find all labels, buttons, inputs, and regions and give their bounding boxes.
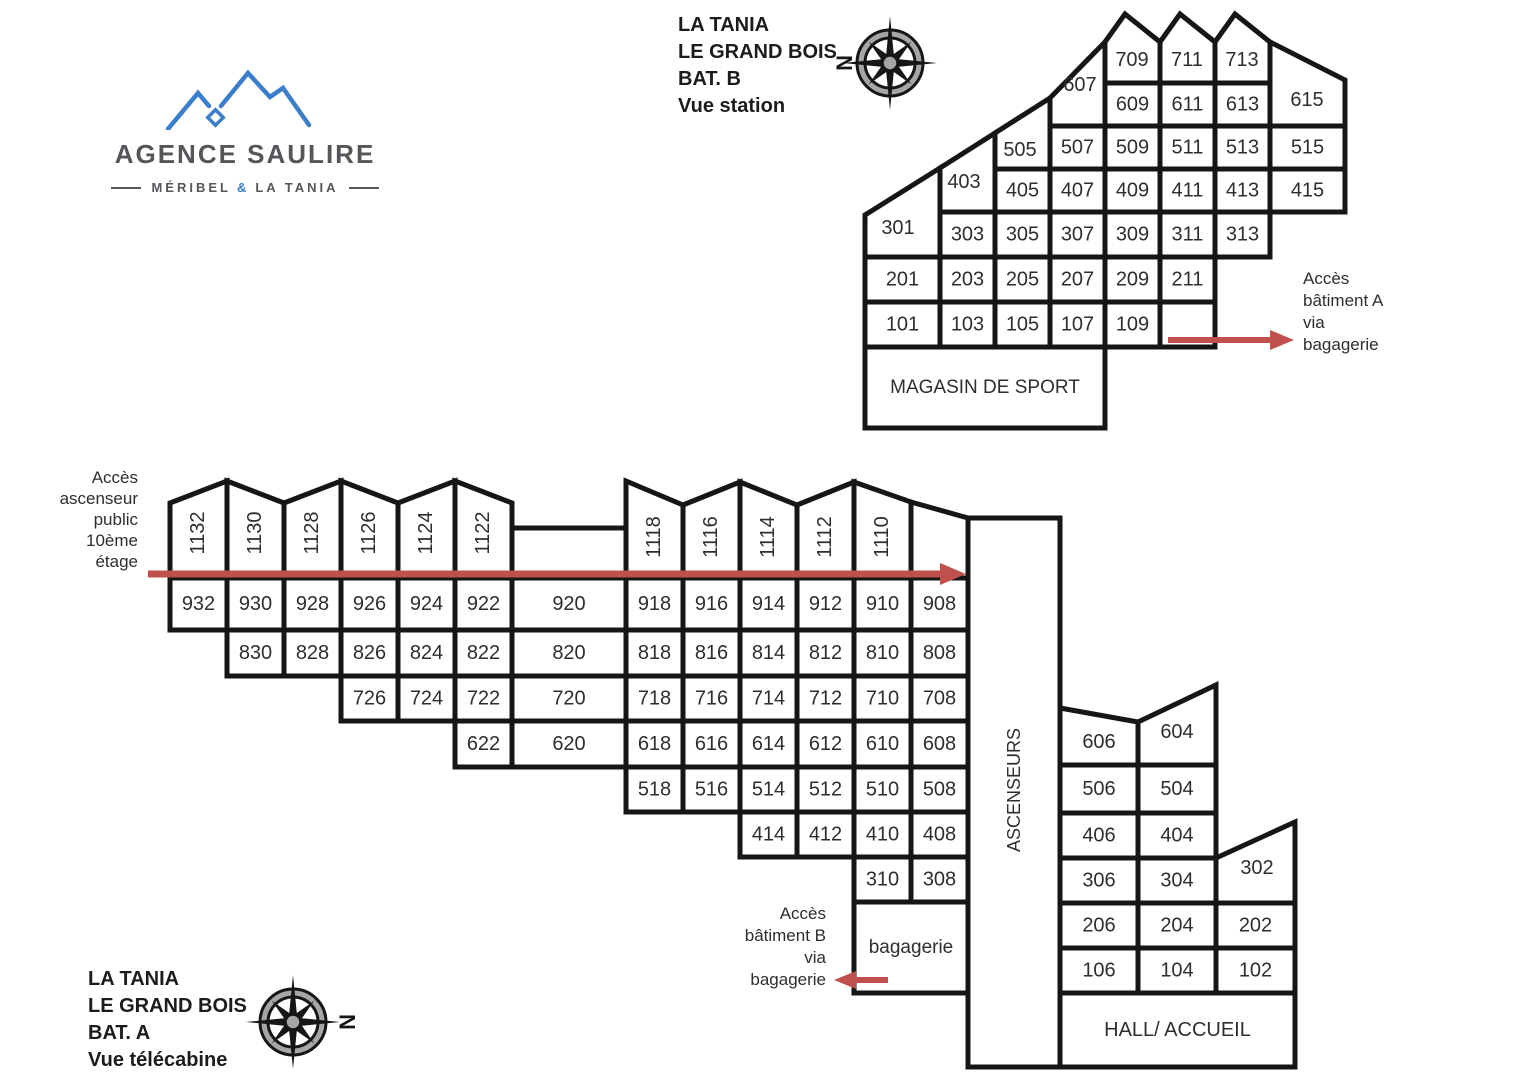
cell-301: [865, 168, 940, 257]
room-label: 713: [1225, 49, 1258, 71]
room-label: 209: [1116, 269, 1149, 291]
room-label: 302: [1240, 857, 1273, 879]
room-label: 818: [638, 642, 671, 664]
room-label: 311: [1172, 224, 1204, 246]
room-label: 205: [1006, 269, 1039, 291]
room-label: 309: [1116, 224, 1149, 246]
room-label: 620: [552, 733, 585, 755]
room-label: 924: [410, 593, 443, 615]
room-label: 1112: [814, 516, 836, 558]
room-label: 203: [951, 269, 984, 291]
room-label: 824: [410, 642, 443, 664]
room-label: 109: [1116, 314, 1149, 336]
room-label: ASCENSEURS: [1004, 728, 1024, 852]
room-label: 912: [809, 593, 842, 615]
room-label: 816: [695, 642, 728, 664]
room-label: 722: [467, 688, 500, 710]
room-label: 828: [296, 642, 329, 664]
room-label: 403: [947, 171, 980, 193]
room-label: 404: [1160, 825, 1193, 847]
room-label: 516: [695, 779, 728, 801]
cell-615: [1270, 42, 1345, 126]
room-label: 207: [1061, 269, 1094, 291]
room-label: 608: [923, 733, 956, 755]
room-label: 411: [1172, 180, 1204, 202]
room-label: 206: [1082, 915, 1115, 937]
room-label: 1110: [871, 516, 893, 558]
room-label: 926: [353, 593, 386, 615]
room-label: 618: [638, 733, 671, 755]
room-label: 301: [881, 217, 914, 239]
room-label: 406: [1082, 825, 1115, 847]
floor-plan-svg: 3014035056077097117136156096116135075095…: [0, 0, 1528, 1080]
room-label: 928: [296, 593, 329, 615]
room-label: 310: [866, 869, 899, 891]
room-label: 1128: [301, 511, 323, 554]
room-label: 810: [866, 642, 899, 664]
room-label: 506: [1082, 778, 1115, 800]
room-label: 313: [1226, 224, 1259, 246]
room-label: 922: [467, 593, 500, 615]
room-label: 724: [410, 688, 443, 710]
room-label: 1132: [187, 511, 209, 554]
room-label: 415: [1291, 180, 1324, 202]
room-label: 710: [866, 688, 899, 710]
room-label: bagagerie: [869, 937, 954, 958]
room-label: 211: [1172, 269, 1204, 291]
room-label: 201: [886, 269, 919, 291]
room-label: 512: [809, 779, 842, 801]
room-label: 1114: [757, 516, 779, 558]
room-label: 612: [809, 733, 842, 755]
compass-north-label: N: [335, 1014, 360, 1030]
room-label: 103: [951, 314, 984, 336]
room-label: HALL/ ACCUEIL: [1104, 1019, 1251, 1041]
floor-plan-page: AGENCE SAULIRE MÉRIBEL & LA TANIA LA TAN…: [0, 0, 1528, 1080]
compass-rose-icon: N: [832, 16, 938, 110]
room-label: 303: [951, 224, 984, 246]
room-label: 726: [353, 688, 386, 710]
room-label: 101: [886, 314, 919, 336]
room-label: 822: [467, 642, 500, 664]
room-label: 505: [1003, 139, 1036, 161]
room-label: 920: [552, 593, 585, 615]
room-label: 1124: [415, 511, 437, 554]
room-label: 412: [809, 824, 842, 846]
room-label: 812: [809, 642, 842, 664]
compass-rose-icon: N: [246, 975, 360, 1069]
room-label: 1126: [358, 511, 380, 554]
room-label: 102: [1239, 960, 1272, 982]
room-label: 514: [752, 779, 785, 801]
room-label: 1122: [472, 511, 494, 554]
room-label: 508: [923, 779, 956, 801]
room-label: 106: [1082, 960, 1115, 982]
room-label: 1118: [643, 516, 665, 558]
room-label: 307: [1061, 224, 1094, 246]
room-label: 932: [182, 593, 215, 615]
room-label: 518: [638, 779, 671, 801]
room-label: 1116: [700, 516, 722, 558]
room-label: 714: [752, 688, 785, 710]
room-label: 413: [1226, 180, 1259, 202]
room-label: 720: [552, 688, 585, 710]
room-label: 606: [1082, 731, 1115, 753]
room-label: 510: [866, 779, 899, 801]
room-label: 808: [923, 642, 956, 664]
room-label: 613: [1226, 94, 1259, 116]
room-label: 105: [1006, 314, 1039, 336]
room-label: 308: [923, 869, 956, 891]
room-label: 509: [1116, 137, 1149, 159]
room-label: 615: [1290, 89, 1323, 111]
room-label: 405: [1006, 180, 1039, 202]
room-label: 916: [695, 593, 728, 615]
room-label: 305: [1006, 224, 1039, 246]
room-label: 616: [695, 733, 728, 755]
room-label: 614: [752, 733, 785, 755]
room-label: 610: [866, 733, 899, 755]
room-label: 409: [1116, 180, 1149, 202]
room-label: 814: [752, 642, 785, 664]
room-label: 908: [923, 593, 956, 615]
room-label: 930: [239, 593, 272, 615]
compass-north-label: N: [832, 55, 857, 71]
room-label: 204: [1160, 915, 1193, 937]
room-label: 202: [1239, 915, 1272, 937]
room-label: 410: [866, 824, 899, 846]
room-label: 408: [923, 824, 956, 846]
room-label: 504: [1160, 778, 1193, 800]
room-label: 414: [752, 824, 785, 846]
room-label: 604: [1160, 721, 1193, 743]
room-label: 910: [866, 593, 899, 615]
room-label: 609: [1116, 94, 1149, 116]
room-label: 918: [638, 593, 671, 615]
room-label: 718: [638, 688, 671, 710]
room-label: 712: [809, 688, 842, 710]
room-label: 511: [1172, 137, 1204, 159]
room-label: 306: [1082, 870, 1115, 892]
room-label: 107: [1061, 314, 1094, 336]
room-label: 826: [353, 642, 386, 664]
room-label: 1130: [244, 511, 266, 554]
room-label: 716: [695, 688, 728, 710]
room-label: 711: [1171, 49, 1203, 71]
room-label: MAGASIN DE SPORT: [890, 377, 1080, 398]
room-label: 507: [1061, 137, 1094, 159]
room-label: 515: [1291, 137, 1324, 159]
room-label: 709: [1115, 49, 1148, 71]
room-label: 708: [923, 688, 956, 710]
room-label: 820: [552, 642, 585, 664]
room-label: 304: [1160, 870, 1193, 892]
room-label: 104: [1160, 960, 1193, 982]
bat-a-unlabeled-cell: [911, 502, 968, 578]
room-label: 607: [1063, 74, 1096, 96]
room-label: 914: [752, 593, 785, 615]
room-label: 407: [1061, 180, 1094, 202]
room-label: 611: [1172, 94, 1204, 116]
room-label: 622: [467, 733, 500, 755]
room-label: 830: [239, 642, 272, 664]
room-label: 513: [1226, 137, 1259, 159]
